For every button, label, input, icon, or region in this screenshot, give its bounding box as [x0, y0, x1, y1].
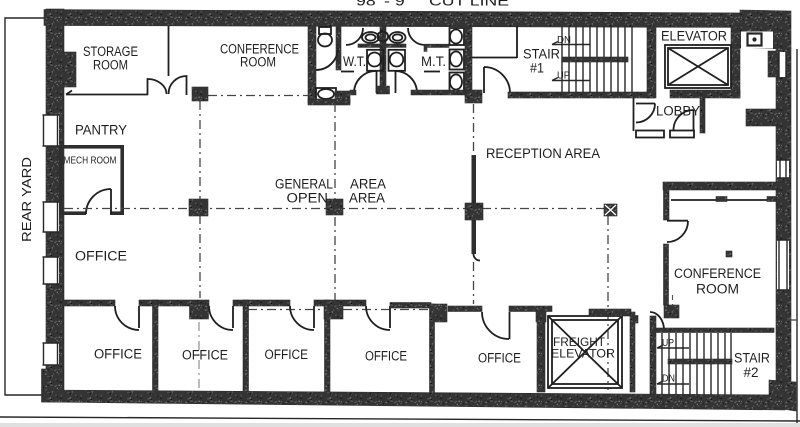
svg-text:ROOM: ROOM: [93, 58, 128, 73]
svg-text:STAIR: STAIR: [523, 47, 560, 62]
svg-text:CUT LINE: CUT LINE: [429, 0, 509, 9]
svg-text:PANTRY: PANTRY: [75, 123, 127, 138]
svg-text:CONFERENCE: CONFERENCE: [674, 266, 761, 281]
svg-text:W.T.: W.T.: [343, 54, 366, 69]
svg-text:MECH ROOM: MECH ROOM: [64, 156, 117, 167]
svg-text:98' - 9": 98' - 9": [356, 0, 411, 9]
svg-text:AREA: AREA: [349, 191, 385, 206]
svg-text:ROOM: ROOM: [240, 55, 276, 70]
svg-text:OFFICE: OFFICE: [478, 351, 521, 366]
svg-text:OFFICE: OFFICE: [94, 347, 142, 362]
svg-text:STAIR: STAIR: [734, 351, 770, 366]
svg-text:RECEPTION AREA: RECEPTION AREA: [486, 146, 600, 161]
svg-text:ROOM: ROOM: [696, 282, 739, 297]
svg-text:OFFICE: OFFICE: [75, 249, 127, 264]
svg-text:#2: #2: [744, 365, 759, 380]
svg-text:OFFICE: OFFICE: [365, 349, 407, 364]
svg-text:OFFICE: OFFICE: [265, 347, 309, 362]
svg-text:ELEVATOR: ELEVATOR: [661, 29, 727, 44]
svg-text:GENERAL: GENERAL: [275, 177, 333, 192]
svg-text:ELEVATOR: ELEVATOR: [551, 347, 615, 361]
svg-text:OPEN: OPEN: [287, 191, 329, 206]
svg-text:REAR YARD: REAR YARD: [19, 157, 34, 242]
svg-text:AREA: AREA: [350, 177, 386, 192]
svg-text:#1: #1: [530, 61, 544, 76]
svg-text:OFFICE: OFFICE: [182, 348, 228, 363]
svg-text:M.T.: M.T.: [421, 54, 446, 69]
svg-text:LOBBY: LOBBY: [656, 104, 700, 119]
svg-text:DN: DN: [662, 374, 675, 385]
